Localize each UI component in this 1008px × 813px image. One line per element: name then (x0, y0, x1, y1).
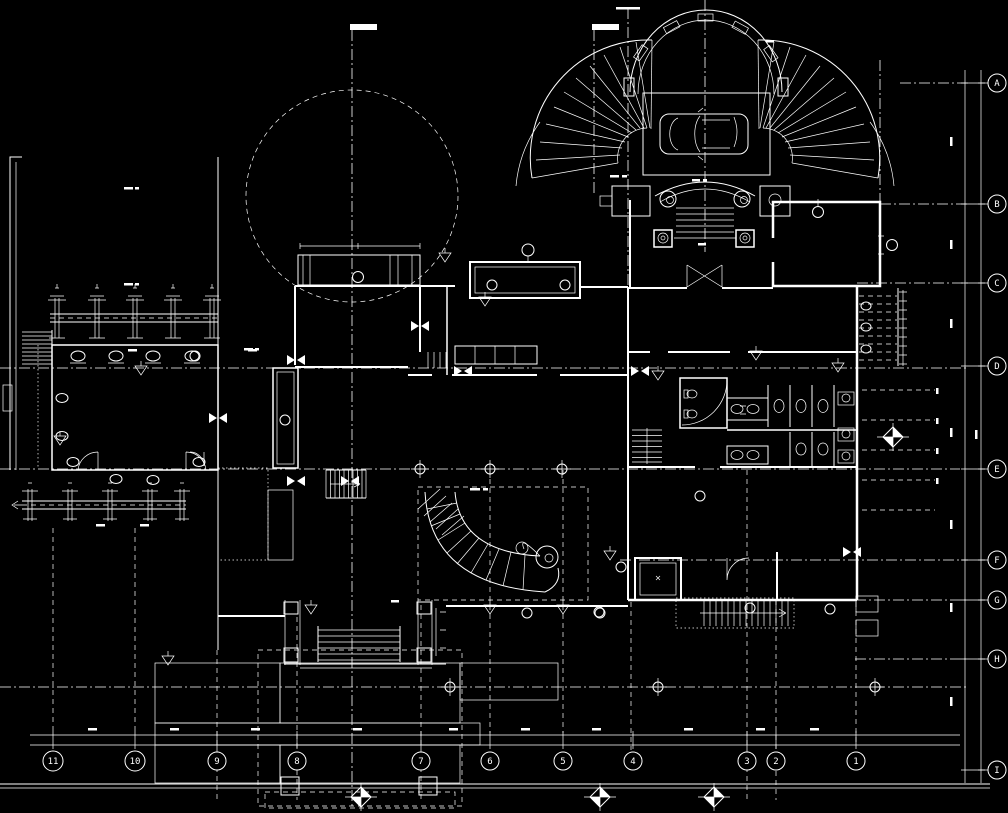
entry-steps (600, 175, 790, 247)
grid-bubble-right-D: D (978, 357, 1006, 375)
site-west-edge (3, 157, 218, 650)
svg-text:8: 8 (294, 757, 299, 767)
benchmark-diamond (698, 783, 730, 811)
grid-bubble-right-G: G (978, 591, 1006, 609)
grid-bubble-right-A: A (978, 74, 1006, 92)
grid-bubble-bottom-6: 6 (481, 752, 499, 770)
grid-right: A B C D E F G H I (950, 70, 1006, 783)
sink-counter-1 (727, 398, 768, 420)
svg-text:D: D (994, 362, 999, 372)
svg-text:3: 3 (744, 757, 749, 767)
svg-text:10: 10 (130, 757, 141, 767)
grid-bubble-bottom-5: 5 (554, 752, 572, 770)
bay-window-north (298, 243, 420, 285)
grid-bubble-bottom-1: 1 (847, 752, 865, 770)
grid-bubble-bottom-2: 2 (767, 752, 785, 770)
benchmark-diamond (877, 423, 909, 451)
svg-text:E: E (994, 465, 999, 475)
stairs-northwest (22, 330, 52, 366)
wc-room (680, 378, 727, 428)
elevator-shaft (635, 558, 681, 600)
grid-bubble-bottom-10: 10 (125, 751, 145, 771)
svg-text:I: I (994, 766, 999, 776)
survey-markers (54, 40, 909, 811)
svg-text:9: 9 (214, 757, 219, 767)
svg-text:6: 6 (487, 757, 492, 767)
grid-bubble-bottom-7: 7 (412, 752, 430, 770)
grid-bubble-right-C: C (978, 274, 1006, 292)
grid-bubble-right-E: E (978, 460, 1006, 478)
northeast-room (771, 199, 939, 600)
svg-text:5: 5 (560, 757, 565, 767)
southeast-wing (594, 491, 878, 636)
grid-bubble-bottom-3: 3 (738, 752, 756, 770)
svg-text:A: A (994, 79, 1000, 89)
level-triangle (54, 248, 844, 665)
svg-text:11: 11 (48, 757, 59, 767)
driveway-fan-left (516, 40, 652, 186)
terrace-room-west (52, 345, 218, 470)
benchmark-diamond (345, 783, 377, 811)
grid-bubble-bottom-11: 11 (43, 751, 63, 771)
svg-text:4: 4 (630, 757, 635, 767)
floor-plan-svg: A B C D E F G H I 11 10 9 8 7 6 5 4 3 2 … (0, 0, 1008, 813)
grid-bubble-bottom-9: 9 (208, 752, 226, 770)
service-block (190, 368, 366, 560)
svg-text:B: B (994, 200, 999, 210)
dimension-text-specks (124, 40, 774, 603)
svg-text:7: 7 (418, 757, 423, 767)
bathroom-block (628, 288, 857, 600)
grid-bubble-right-H: H (978, 650, 1006, 668)
svg-text:1: 1 (853, 757, 858, 767)
grid-bubble-right-F: F (978, 551, 1006, 569)
car-bay (643, 93, 770, 175)
svg-text:G: G (994, 596, 999, 606)
porte-cochere (624, 10, 788, 175)
svg-text:H: H (994, 655, 999, 665)
centerlines (0, 0, 968, 808)
south-porch (218, 600, 628, 808)
driveway-fan-right (758, 40, 894, 186)
grid-bubble-right-I: I (978, 761, 1006, 779)
car-icon (660, 108, 748, 182)
svg-text:F: F (994, 556, 999, 566)
colonnade-south (12, 475, 190, 527)
svg-text:2: 2 (773, 757, 778, 767)
closet-shelves (859, 296, 897, 360)
grid-bubble-bottom-4: 4 (624, 752, 642, 770)
grand-staircase (418, 487, 588, 600)
section-bowtie (209, 321, 861, 557)
sink-counter-2 (727, 446, 768, 464)
grid-bubble-right-B: B (978, 195, 1006, 213)
svg-text:C: C (994, 279, 999, 289)
cad-canvas: A B C D E F G H I 11 10 9 8 7 6 5 4 3 2 … (0, 0, 1008, 813)
benchmark-diamond (584, 783, 616, 811)
grid-bottom: 11 10 9 8 7 6 5 4 3 2 1 (0, 728, 990, 788)
west-rooms (295, 244, 628, 375)
grid-bubble-bottom-8: 8 (288, 752, 306, 770)
